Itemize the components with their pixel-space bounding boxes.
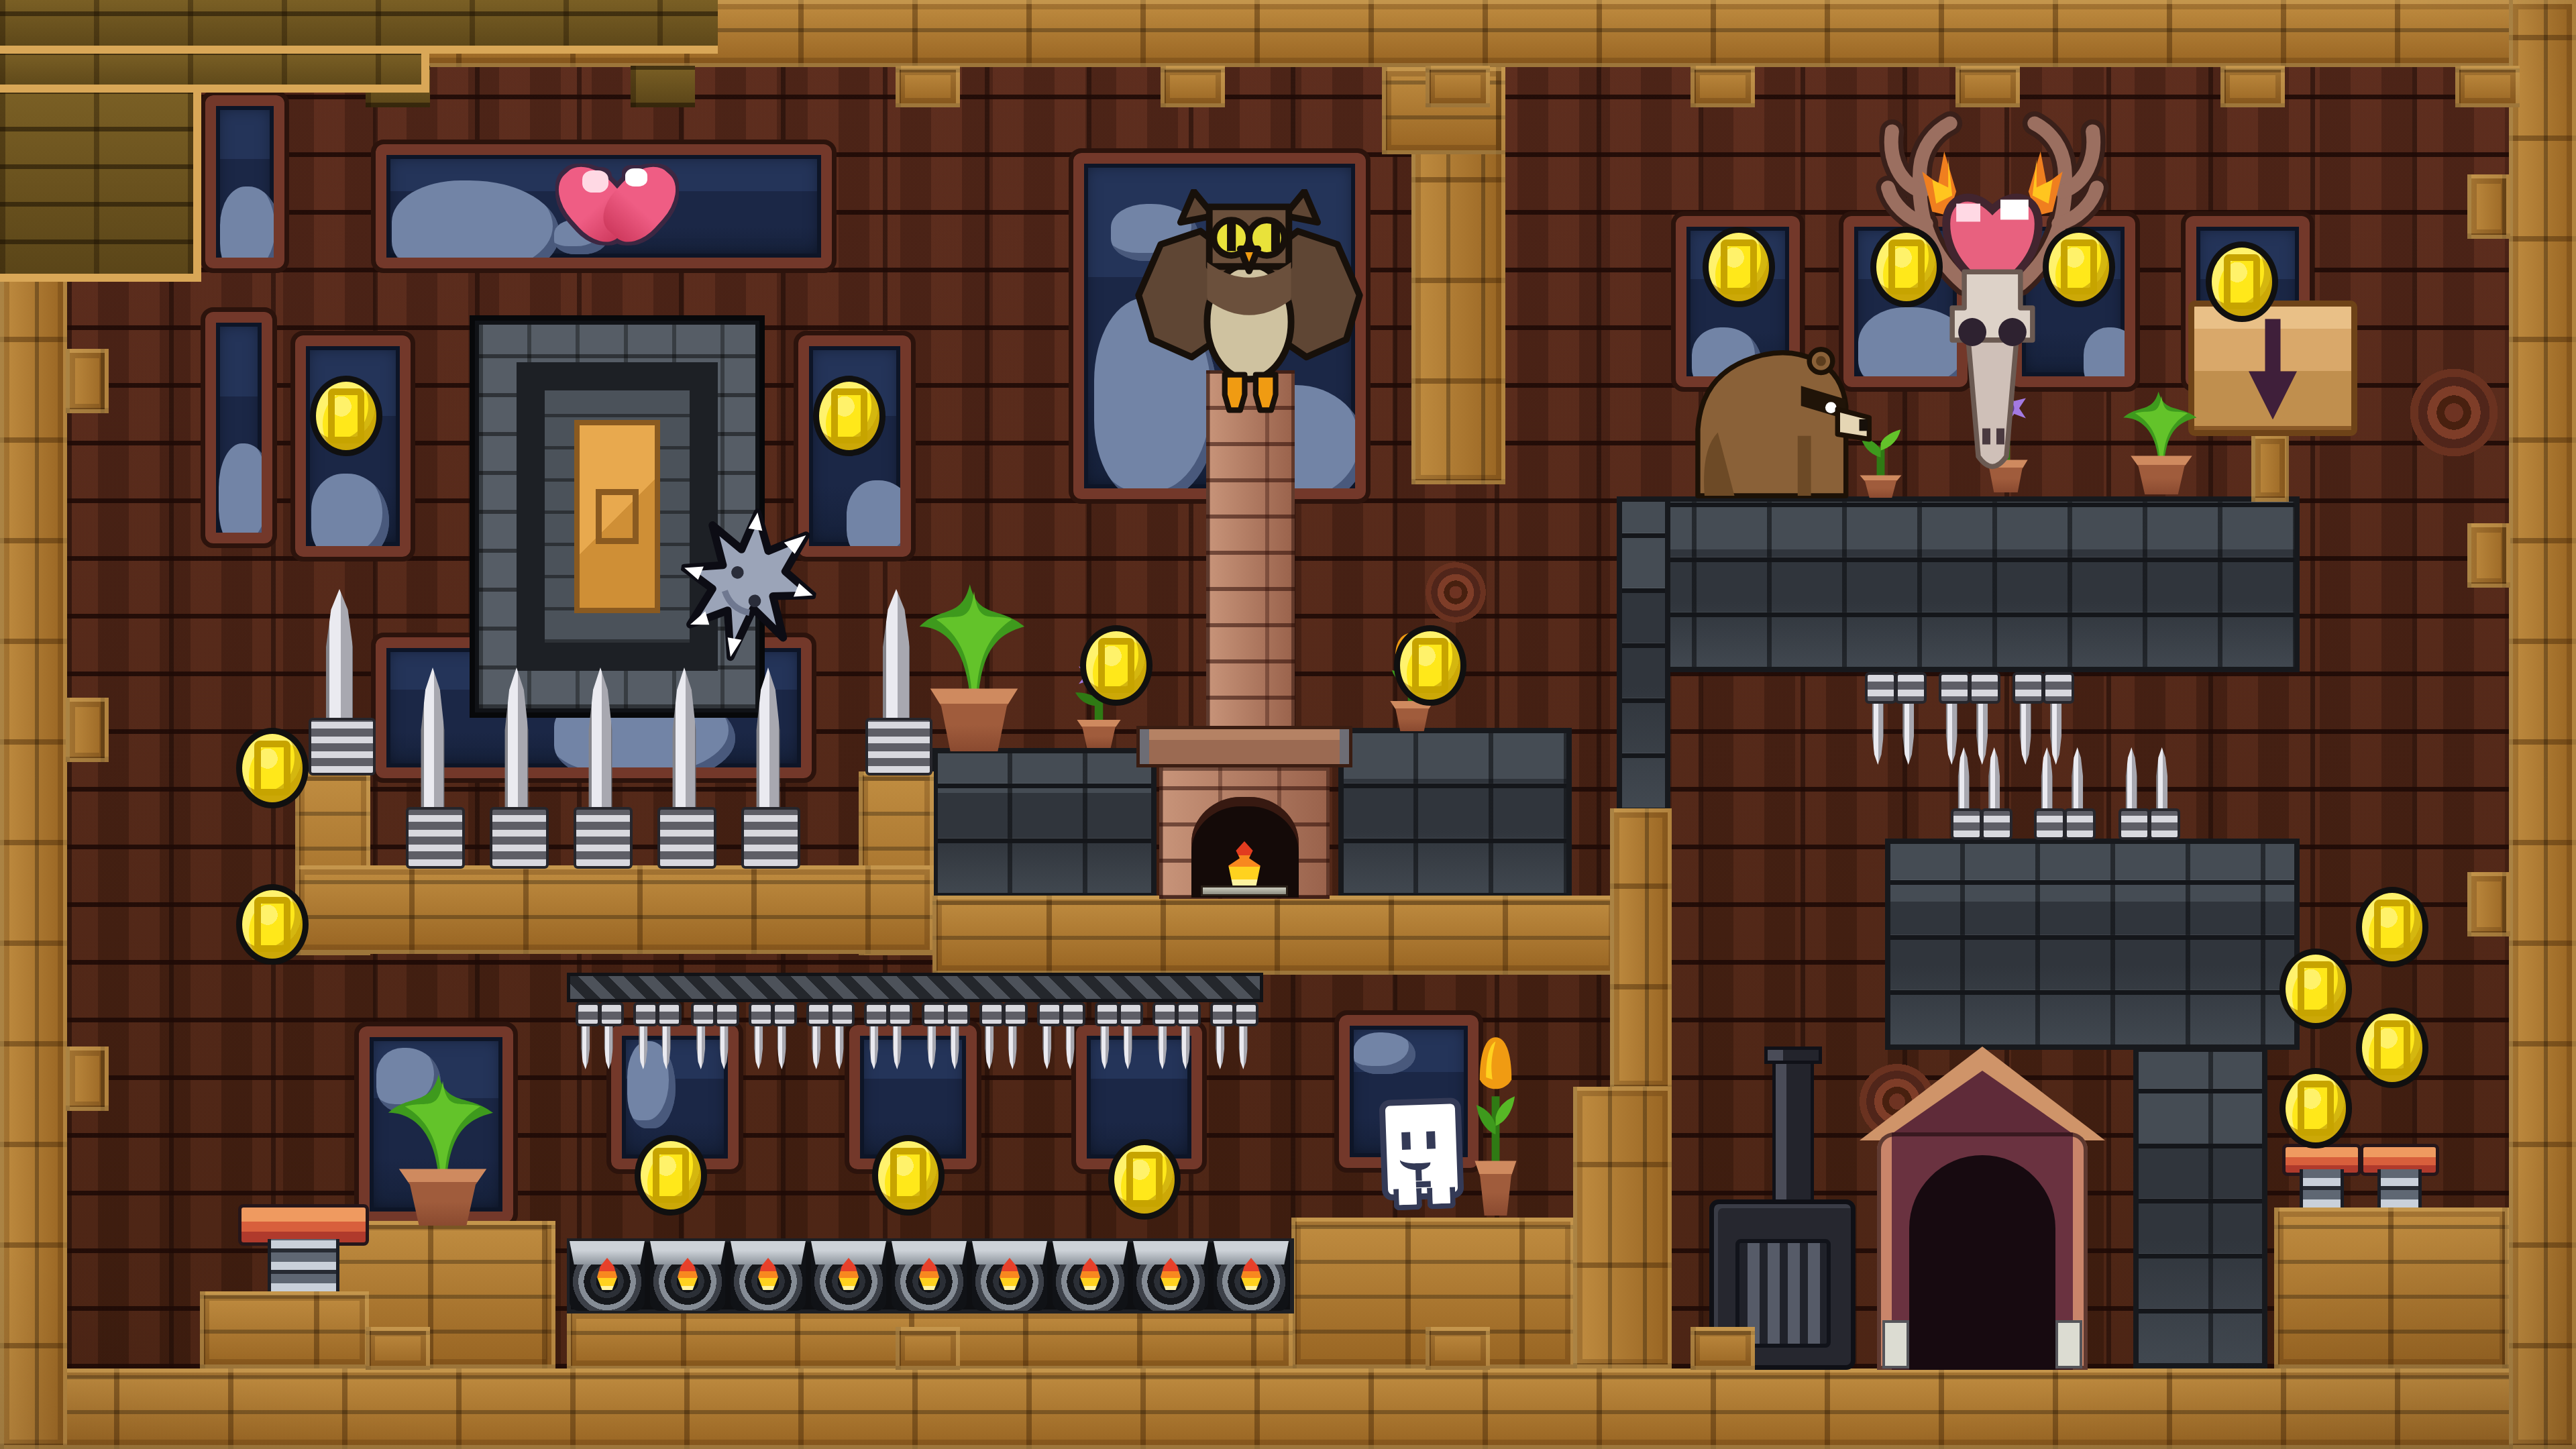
heart-icon[interactable] xyxy=(567,162,667,263)
cloud xyxy=(847,480,911,557)
owl-sprite xyxy=(1132,189,1366,415)
ghost-pocket xyxy=(1415,1163,1421,1181)
flame-emblem-icon xyxy=(1053,1241,1128,1311)
stove-pipe-cap xyxy=(1764,1046,1822,1064)
spike-hazard xyxy=(309,589,370,775)
owl-room-floor xyxy=(932,896,1618,975)
frame-right xyxy=(2509,0,2576,1449)
ceiling-spike-pair xyxy=(979,1002,1022,1069)
coin-pickup[interactable] xyxy=(1703,227,1775,307)
frame-tab-top xyxy=(2220,66,2285,107)
frame-tab-bottom xyxy=(366,1327,430,1370)
frame-tab-top xyxy=(1426,66,1490,107)
frame-tab-top xyxy=(896,66,960,107)
ceiling-spike-pair xyxy=(1210,1002,1253,1069)
game-viewport[interactable] xyxy=(0,0,2576,1449)
spike-hazard xyxy=(741,667,795,869)
frame-tab-bottom xyxy=(1690,1327,1755,1370)
spring-bouncer[interactable] xyxy=(238,1204,362,1291)
cloud xyxy=(392,180,559,268)
coin-pickup[interactable] xyxy=(813,376,885,456)
ceiling-spike-pair xyxy=(806,1002,849,1069)
deer-skull-sprite xyxy=(1870,99,2114,565)
spike-hazard xyxy=(490,667,543,869)
fire-flame-icon xyxy=(1221,841,1268,888)
saw-blade-icon xyxy=(666,496,830,678)
chimney xyxy=(1206,370,1295,736)
corner-panel-step xyxy=(0,54,429,93)
spike-hazard xyxy=(657,667,711,869)
ceiling-spike-pair xyxy=(633,1002,676,1069)
terracotta-pot xyxy=(1076,720,1122,748)
window xyxy=(205,312,272,543)
brick-rosette xyxy=(2407,366,2501,460)
ghost-player-sprite[interactable] xyxy=(1379,1097,1464,1201)
frame-tab-top xyxy=(2455,66,2520,107)
frame-tab-right xyxy=(2467,872,2510,936)
ghost-foot xyxy=(1393,1188,1422,1210)
fireplace-sill xyxy=(1201,885,1288,896)
divider-column-lower xyxy=(1573,1087,1672,1368)
flame-emblem-icon xyxy=(972,1241,1047,1311)
door-opening[interactable] xyxy=(1909,1155,2055,1370)
frame-tab-top xyxy=(1690,66,1755,107)
stone-platform-upper-right-leg xyxy=(1617,496,1670,813)
stone-block-left-of-fireplace xyxy=(932,748,1157,898)
ceiling-spike-pair xyxy=(1095,1002,1138,1069)
cloud xyxy=(311,474,389,557)
potted-plant-flower-orange xyxy=(1464,1033,1527,1216)
stone-column-right xyxy=(2133,1046,2267,1368)
ceiling-spike-pair xyxy=(1152,1002,1195,1069)
frame-tab-top xyxy=(631,66,695,107)
coin-pickup[interactable] xyxy=(236,884,309,965)
ceiling-spike-mount xyxy=(567,973,1263,1002)
frame-center-mark xyxy=(596,489,639,544)
fireplace-opening xyxy=(1191,797,1299,898)
coin-pickup[interactable] xyxy=(2279,1068,2352,1148)
flame-emblem-icon xyxy=(570,1241,645,1311)
terracotta-pot xyxy=(397,1169,488,1226)
bear-sprite xyxy=(1684,333,1872,499)
ceiling-spike-pair xyxy=(576,1002,619,1069)
coin-pickup[interactable] xyxy=(2206,241,2278,322)
flame-emblem-icon xyxy=(811,1241,886,1311)
flame-emblem-icon xyxy=(650,1241,725,1311)
potted-plant-fern xyxy=(376,1036,510,1226)
frame-tab-top xyxy=(1161,66,1225,107)
terracotta-pot xyxy=(1474,1161,1517,1216)
stone-block-right-of-fireplace xyxy=(1338,728,1572,898)
divider-column-upper xyxy=(1610,808,1672,1090)
coin-pickup[interactable] xyxy=(2043,227,2115,307)
spike-cluster-up xyxy=(1951,747,2007,840)
coin-pickup[interactable] xyxy=(872,1135,945,1216)
spring-bouncer[interactable] xyxy=(2282,1144,2355,1207)
spring-bouncer[interactable] xyxy=(2360,1144,2432,1207)
coin-pickup[interactable] xyxy=(1080,625,1152,706)
flame-emblem-icon xyxy=(1133,1241,1208,1311)
coin-pickup[interactable] xyxy=(310,376,382,456)
ceiling-spike-pair xyxy=(691,1002,734,1069)
coin-pickup[interactable] xyxy=(2356,887,2428,967)
coin-pickup[interactable] xyxy=(1870,227,1943,307)
frame-tab-left xyxy=(66,698,109,762)
flame-emblem-icon xyxy=(731,1241,806,1311)
door-stopper-right xyxy=(2055,1320,2082,1368)
spike-trough-floor xyxy=(295,865,934,954)
frame-tab-left xyxy=(66,1046,109,1111)
window xyxy=(205,95,284,268)
coin-pickup[interactable] xyxy=(635,1135,707,1216)
frame-tab-right xyxy=(2467,523,2510,588)
frame-tab-left xyxy=(66,349,109,413)
frame-tab-right xyxy=(2467,174,2510,239)
frame-tab-bottom xyxy=(896,1327,960,1370)
frame-bottom xyxy=(0,1368,2576,1449)
terracotta-pot xyxy=(928,688,1020,751)
ceiling-spike-pair xyxy=(922,1002,965,1069)
sign-post xyxy=(2251,435,2289,502)
ghost-eye xyxy=(1401,1132,1411,1149)
spring-pedestal-left xyxy=(200,1291,369,1368)
coin-pickup[interactable] xyxy=(2279,949,2352,1029)
frame-tab-bottom xyxy=(1426,1327,1490,1370)
stove-pipe xyxy=(1772,1055,1814,1203)
brick-rosette xyxy=(1424,560,1488,625)
coin-pickup[interactable] xyxy=(1394,625,1466,706)
coin-pickup[interactable] xyxy=(1108,1139,1181,1220)
spike-cluster-up xyxy=(2034,747,2090,840)
potted-plant-fern xyxy=(2114,366,2208,494)
flame-emblem-icon xyxy=(1214,1241,1289,1311)
spike-hazard xyxy=(574,667,627,869)
down-arrow-sign xyxy=(2188,301,2357,436)
spike-cluster-up xyxy=(2118,747,2175,840)
ceiling-spike-pair xyxy=(749,1002,792,1069)
coin-pickup[interactable] xyxy=(236,728,309,808)
stone-platform-lower-right xyxy=(1885,839,2300,1050)
fireplace xyxy=(1159,767,1330,899)
cloud xyxy=(219,443,272,543)
corner-panel-left xyxy=(0,93,201,282)
flame-emblem-icon xyxy=(892,1241,967,1311)
ghost-eye xyxy=(1426,1131,1436,1148)
ghost-foot xyxy=(1427,1187,1456,1209)
spring-pedestal-right xyxy=(2274,1207,2509,1368)
cloud xyxy=(220,186,282,268)
cloud xyxy=(1354,1032,1415,1074)
spike-cluster-down xyxy=(1865,672,1921,765)
coin-pickup[interactable] xyxy=(2356,1008,2428,1088)
ceiling-spike-pair xyxy=(864,1002,907,1069)
door-stopper-left xyxy=(1882,1320,1909,1368)
potted-plant-fern xyxy=(907,542,1041,751)
mantel xyxy=(1136,726,1352,767)
corner-panel-top xyxy=(0,0,718,54)
ghost-pocket xyxy=(1415,1181,1430,1187)
terracotta-pot xyxy=(2129,455,2193,494)
spike-hazard xyxy=(406,667,460,869)
ceiling-spike-pair xyxy=(1037,1002,1080,1069)
